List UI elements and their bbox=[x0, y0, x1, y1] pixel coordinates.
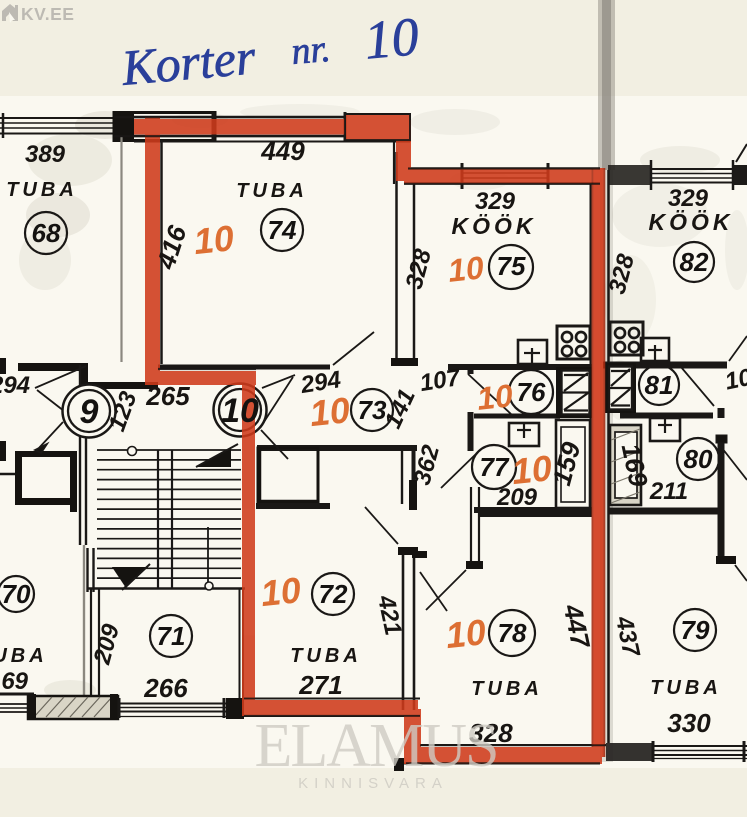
svg-text:78: 78 bbox=[498, 618, 527, 648]
svg-text:75: 75 bbox=[497, 251, 526, 281]
svg-text:74: 74 bbox=[268, 215, 297, 245]
svg-text:70: 70 bbox=[2, 579, 31, 609]
svg-text:10: 10 bbox=[444, 611, 488, 656]
svg-text:10: 10 bbox=[475, 377, 514, 417]
svg-text:10: 10 bbox=[723, 364, 747, 396]
svg-text:266: 266 bbox=[143, 673, 188, 703]
svg-text:81: 81 bbox=[645, 370, 674, 400]
svg-text:79: 79 bbox=[681, 615, 710, 645]
svg-text:KÖÖK: KÖÖK bbox=[649, 209, 734, 235]
svg-text:9: 9 bbox=[80, 393, 99, 431]
svg-text:294: 294 bbox=[0, 372, 30, 399]
svg-text:TUBA: TUBA bbox=[471, 678, 543, 700]
svg-text:77: 77 bbox=[480, 452, 510, 482]
svg-text:KV.EE: KV.EE bbox=[21, 4, 74, 24]
svg-text:82: 82 bbox=[680, 247, 709, 277]
svg-text:10: 10 bbox=[446, 249, 485, 289]
svg-text:TUBA: TUBA bbox=[290, 645, 362, 667]
svg-text:KINNISVARA: KINNISVARA bbox=[298, 775, 448, 792]
svg-text:10: 10 bbox=[221, 392, 259, 430]
svg-text:TUBA: TUBA bbox=[650, 677, 722, 699]
svg-text:80: 80 bbox=[684, 444, 713, 474]
svg-text:76: 76 bbox=[517, 377, 546, 407]
svg-text:10: 10 bbox=[259, 569, 303, 614]
svg-text:169: 169 bbox=[0, 668, 29, 695]
svg-text:Korter: Korter bbox=[119, 28, 258, 96]
svg-text:nr.: nr. bbox=[290, 28, 333, 73]
svg-text:209: 209 bbox=[496, 484, 538, 511]
svg-text:329: 329 bbox=[668, 185, 709, 212]
svg-text:10: 10 bbox=[192, 217, 236, 262]
svg-text:265: 265 bbox=[145, 381, 190, 411]
svg-text:72: 72 bbox=[319, 579, 348, 609]
svg-text:TUBA: TUBA bbox=[6, 179, 78, 201]
svg-text:71: 71 bbox=[157, 621, 186, 651]
svg-text:UBA: UBA bbox=[0, 645, 48, 667]
svg-text:TUBA: TUBA bbox=[236, 180, 308, 202]
svg-text:KÖÖK: KÖÖK bbox=[452, 213, 537, 239]
svg-text:329: 329 bbox=[475, 188, 516, 215]
svg-text:10: 10 bbox=[362, 6, 421, 70]
svg-text:330: 330 bbox=[667, 708, 711, 738]
svg-text:211: 211 bbox=[649, 478, 688, 505]
svg-text:ELAMUS: ELAMUS bbox=[255, 712, 498, 780]
svg-text:271: 271 bbox=[298, 670, 342, 700]
svg-text:389: 389 bbox=[25, 141, 66, 168]
svg-text:449: 449 bbox=[260, 136, 305, 166]
svg-text:68: 68 bbox=[32, 218, 61, 248]
